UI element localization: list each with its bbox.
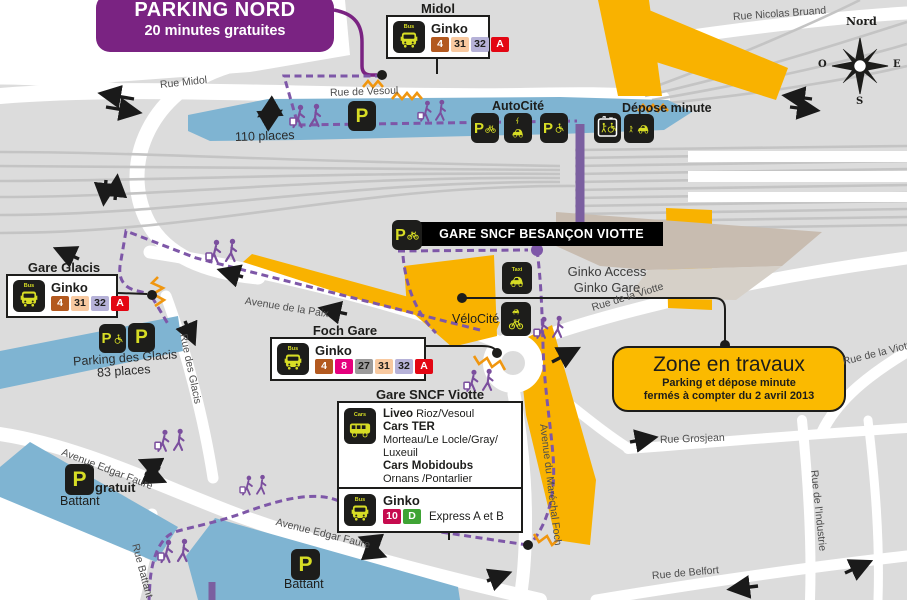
zone-travaux-box: Zone en travaux Parking et dépose minute… — [612, 346, 846, 412]
zone-travaux-line1: Parking et dépose minute — [614, 377, 844, 390]
line-badge: 8 — [335, 359, 353, 374]
line-badge: 4 — [431, 37, 449, 52]
elevator-icon — [594, 113, 621, 143]
stop-name-gare-glacis: Gare Glacis — [10, 260, 118, 275]
parking-icon: P — [348, 101, 376, 131]
station-banner: GARE SNCF BESANÇON VIOTTE — [420, 222, 663, 246]
bus-icon: Bus — [393, 21, 425, 53]
line-badge: 4 — [315, 359, 333, 374]
operator-label: Ginko — [431, 22, 509, 35]
bus-icon: Bus — [13, 280, 45, 312]
stop-name-midol: Midol — [386, 1, 490, 16]
stop-box-gare-glacis: Bus Ginko 4 31 32 A — [6, 274, 118, 318]
liveo-destinations: Rioz/Vesoul — [416, 408, 474, 420]
line-badge: 31 — [375, 359, 393, 374]
operator-label: Ginko — [383, 494, 504, 507]
coach-services-box: Cars Liveo Rioz/Vesoul Cars TER Morteau/… — [337, 401, 523, 489]
parking-nord-title: PARKING NORD — [96, 0, 334, 22]
battant-label-1: Battant — [60, 494, 100, 508]
parking-icon: P — [128, 323, 155, 352]
operator-label: Ginko — [315, 344, 433, 357]
parking-nord-banner: PARKING NORD 20 minutes gratuites — [96, 0, 334, 52]
cars-ter-label: Cars TER — [383, 421, 516, 434]
street-rue-grosjean: Rue Grosjean — [660, 432, 725, 446]
bus-icon: Bus — [344, 494, 376, 526]
compass-west-label: O — [818, 59, 827, 70]
line-badge: A — [491, 37, 509, 52]
line-badge: 31 — [451, 37, 469, 52]
liveo-label: Liveo — [383, 408, 413, 420]
line-badge: 4 — [51, 296, 69, 311]
depose-minute-label: Dépose minute — [622, 101, 712, 115]
mobidoubs-destinations-1: Ornans /Pontarlier — [383, 473, 516, 486]
line-badge: A — [111, 296, 129, 311]
line-badge: A — [415, 359, 433, 374]
express-note: Express A et B — [429, 511, 504, 523]
bus-icon: Bus — [277, 343, 309, 375]
operator-label: Ginko — [51, 281, 129, 294]
stop-box-midol: Bus Ginko 4 31 32 A — [386, 15, 490, 59]
zone-travaux-title: Zone en travaux — [614, 353, 844, 377]
taxi-icon: Taxi — [502, 262, 532, 294]
line-badge: D — [403, 509, 421, 524]
line-badge: 32 — [395, 359, 413, 374]
parking-bike-icon: P — [392, 220, 422, 250]
compass-south-label: S — [856, 96, 863, 107]
besancon-viotte-station-map: PARKING NORD 20 minutes gratuites Midol … — [0, 0, 907, 600]
line-badge: 10 — [383, 509, 401, 524]
stop-box-foch-gare: Bus Ginko 4 8 27 31 32 A — [270, 337, 426, 381]
street-rue-de-vesoul: Rue de Vesoul — [330, 85, 399, 99]
parking-nord-places: 110 places — [235, 128, 295, 144]
parking-nord-subtitle: 20 minutes gratuites — [96, 22, 334, 40]
line-badge: 27 — [355, 359, 373, 374]
velocite-label: VéloCité — [452, 312, 499, 326]
electric-car-icon — [504, 113, 532, 143]
line-badge: 31 — [71, 296, 89, 311]
ginko-access-label: Ginko Access — [548, 264, 666, 280]
compass-east-label: E — [893, 59, 901, 70]
line-badge: 32 — [471, 37, 489, 52]
stop-name-foch-gare: Foch Gare — [300, 323, 390, 338]
autocite-label: AutoCité — [492, 99, 544, 113]
stop-name-gare-sncf-viotte: Gare SNCF Viotte — [337, 387, 523, 402]
ginko-express-box: Bus Ginko 10 D Express A et B — [337, 487, 523, 533]
parking-accessible-icon: P — [99, 324, 126, 353]
compass-rose-icon — [832, 38, 888, 94]
drop-off-icon — [624, 114, 654, 143]
cars-mobidoubs-label: Cars Mobidoubs — [383, 460, 516, 473]
cars-ter-destinations: Morteau/Le Locle/Gray/ Luxeuil — [383, 434, 516, 460]
compass-north-label: Nord — [846, 15, 876, 28]
velocite-bike-icon — [501, 302, 531, 336]
line-badge: 32 — [91, 296, 109, 311]
zone-travaux-line2: fermés à compter du 2 avril 2013 — [614, 390, 844, 403]
parking-accessible-icon: P — [540, 113, 568, 143]
coach-icon: Cars — [344, 408, 376, 444]
platforms — [688, 151, 907, 202]
parking-moto-icon: P — [471, 113, 499, 143]
parking-icon: P — [291, 549, 320, 580]
